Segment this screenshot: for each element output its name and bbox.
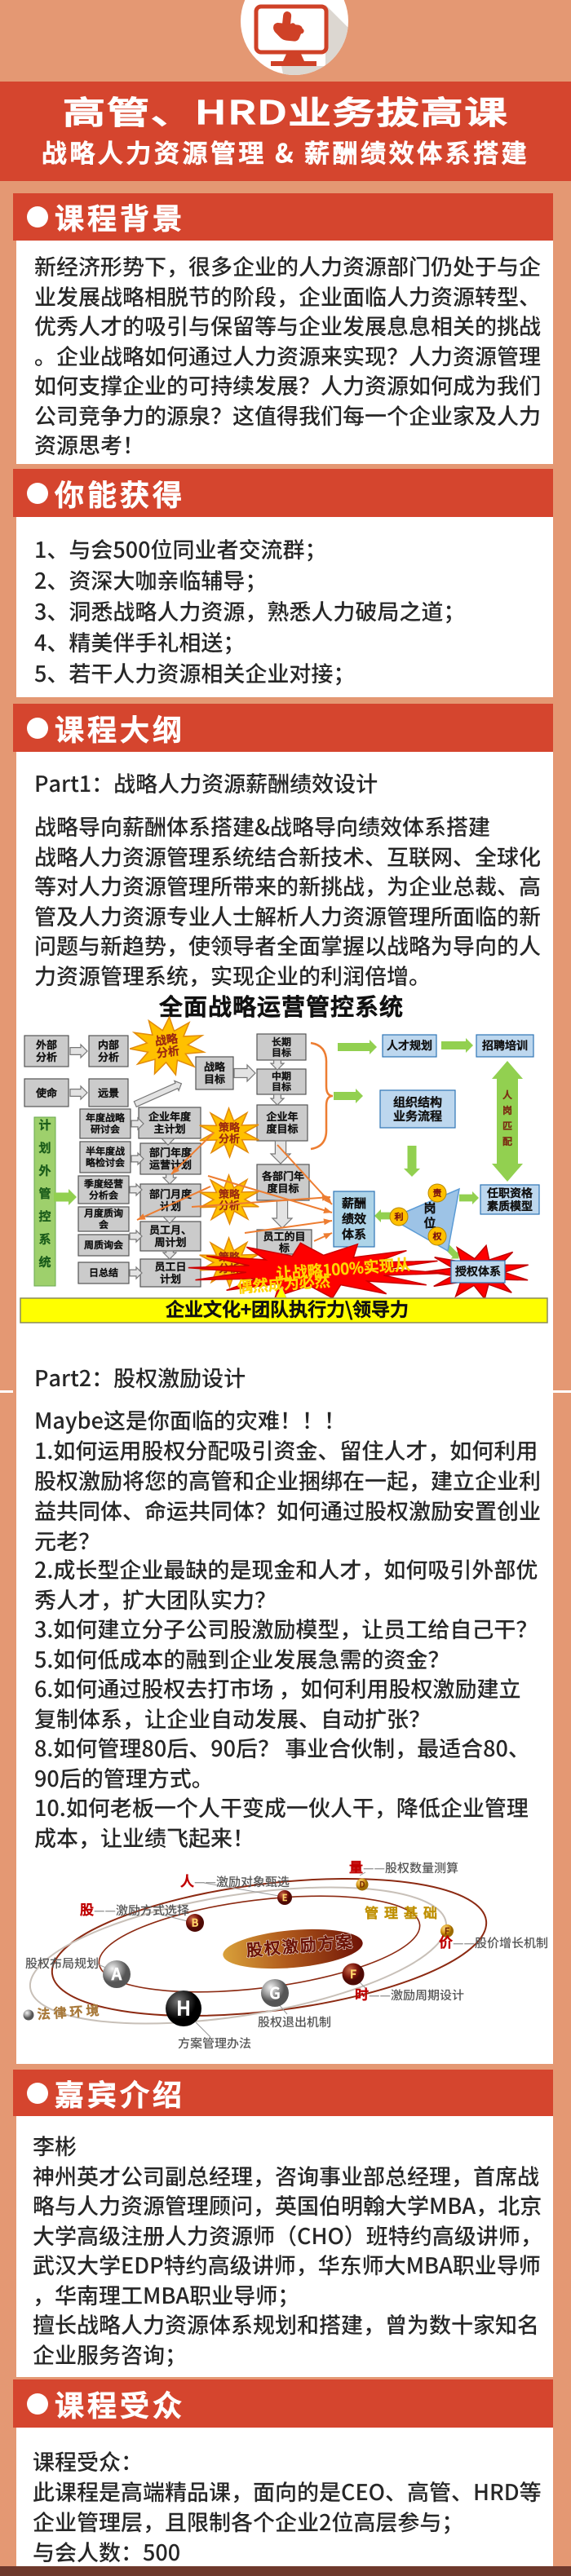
svg-text:标: 标 [278,1239,290,1255]
svg-text:H: H [176,1993,191,2021]
svg-text:分析: 分析 [98,1049,119,1064]
svg-text:分析: 分析 [36,1049,57,1064]
svg-text:周计划: 周计划 [153,1234,186,1249]
svg-text:人才规划: 人才规划 [386,1037,432,1054]
svg-text:日总结: 日总结 [89,1266,118,1279]
svg-text:方案管理办法: 方案管理办法 [178,2035,251,2052]
svg-text:使命: 使命 [35,1085,58,1100]
svg-text:绩效: 绩效 [342,1210,367,1227]
svg-text:量——股权数量测算: 量——股权数量测算 [349,1859,458,1876]
svg-text:策略分析: 策略分析 [218,1119,241,1146]
svg-text:远景: 远景 [98,1085,119,1100]
svg-text:计划: 计划 [160,1270,181,1286]
svg-text:会: 会 [98,1217,109,1231]
svg-text:分析会: 分析会 [89,1188,119,1202]
svg-text:股权布局规划: 股权布局规划 [25,1955,99,1972]
svg-text:度目标: 度目标 [267,1180,299,1195]
svg-text:体系: 体系 [341,1226,366,1243]
svg-text:策略分析: 策略分析 [218,1186,241,1213]
svg-text:周质询会: 周质询会 [83,1238,124,1252]
svg-text:权: 权 [432,1230,443,1243]
svg-text:企业文化+团队执行力\领导力: 企业文化+团队执行力\领导力 [165,1294,409,1322]
svg-text:价——股价增长机制: 价——股价增长机制 [439,1931,548,1951]
svg-text:研讨会: 研讨会 [91,1122,121,1136]
svg-text:目标: 目标 [204,1071,225,1086]
svg-text:责: 责 [433,1186,442,1200]
svg-text:招聘培训: 招聘培训 [482,1037,528,1054]
svg-text:度目标: 度目标 [266,1120,298,1136]
svg-text:运营计划: 运营计划 [149,1156,192,1172]
svg-text:主计划: 主计划 [153,1120,185,1136]
svg-text:授权体系: 授权体系 [455,1263,501,1279]
svg-text:B: B [192,1915,199,1930]
svg-text:计划外管控系统: 计划外管控系统 [38,1116,51,1270]
svg-text:目标: 目标 [272,1080,291,1094]
svg-text:岗位: 岗位 [423,1200,436,1231]
svg-text:管理基础: 管理基础 [365,1902,443,1922]
svg-text:F: F [350,1966,356,1982]
svg-text:人——激励对象甄选: 人——激励对象甄选 [179,1870,290,1890]
svg-text:略检讨会: 略检讨会 [86,1155,126,1169]
svg-text:目标: 目标 [272,1045,291,1059]
svg-text:利: 利 [394,1210,404,1223]
svg-text:D: D [360,1878,365,1890]
svg-text:业务流程: 业务流程 [393,1107,442,1125]
svg-text:G: G [269,1982,280,2004]
svg-text:A: A [111,1961,122,1985]
svg-text:薪酬: 薪酬 [342,1195,366,1212]
svg-text:股权退出机制: 股权退出机制 [258,2013,331,2030]
svg-text:时——激励周期设计: 时——激励周期设计 [355,1983,464,2004]
svg-text:素质模型: 素质模型 [486,1198,533,1214]
svg-text:计划: 计划 [160,1198,181,1213]
svg-text:股——激励方式选择: 股——激励方式选择 [80,1898,189,1919]
svg-text:E: E [282,1891,288,1904]
